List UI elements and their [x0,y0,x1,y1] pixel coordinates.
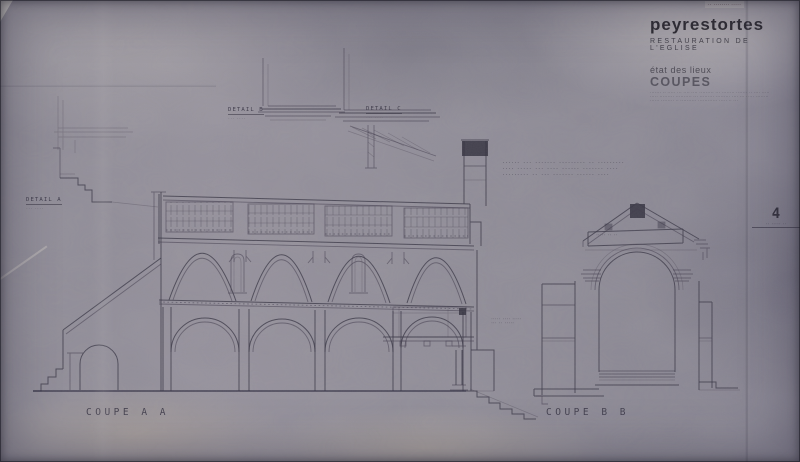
title-block: peyrestortes RESTAURATION DE L'EGLISE ét… [650,15,798,103]
label-coupe-aa: COUPE A A [86,407,169,418]
archive-stamp-text: ·· ········ ····· [708,2,741,7]
label-detail-a: DETAIL A ··· ···· [26,186,62,210]
tribune-note: ····· ···· ····· ··· ·· ····· [491,317,522,326]
band-note: ····· ·· ·· [596,233,617,237]
label-detail-b: DETAIL B ··· ···· [228,96,264,120]
archive-stamp: ·· ········ ····· [705,1,744,8]
sheet-number-block: 4 ·· ····· ·· [752,206,800,228]
sheet-name: COUPES [650,75,798,89]
series-label: état des lieux [650,65,798,75]
label-detail-c: DETAIL C ··· ···· [366,95,402,119]
torn-corner [0,0,13,22]
sheet-number-rule [752,227,800,228]
sheet-number-caption: ·· ····· ·· [752,222,800,226]
drawing-note: ······ ··· ······· ········· ·· ········… [502,161,624,179]
sheet-number: 4 [752,206,800,222]
blueprint-sheet: ·· ········ ····· peyrestortes RESTAURAT… [0,0,800,462]
project-title: peyrestortes [650,15,798,35]
project-subtitle: RESTAURATION DE L'EGLISE [650,38,798,52]
fine-print-line: ······ ········ ·· ·········· ··········… [650,99,798,103]
label-coupe-bb: COUPE B B [546,407,629,418]
